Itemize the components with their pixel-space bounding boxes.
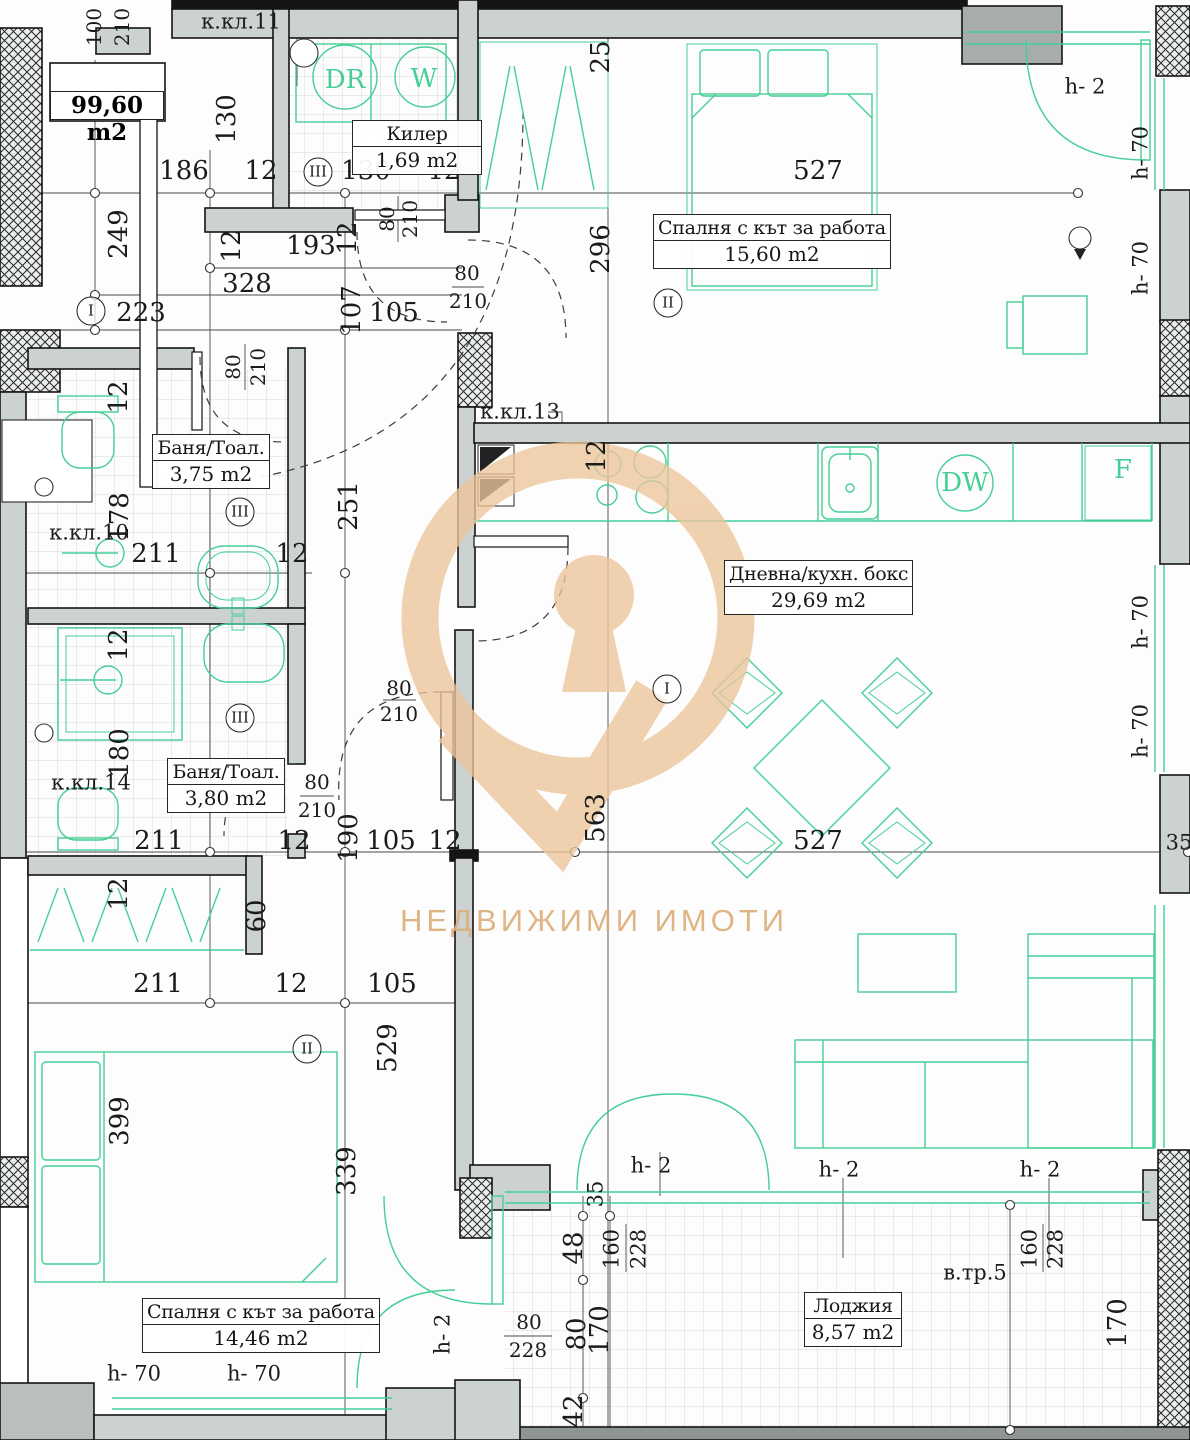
room-area: 3,75 m2: [153, 461, 269, 488]
dimension-label: 105: [367, 971, 417, 997]
shaft-label: к.кл.10: [49, 523, 129, 544]
dimension-label: 296: [588, 224, 614, 274]
dimension-label: 12: [219, 229, 245, 262]
dimension-label: 80: [223, 354, 243, 379]
dimension-label: 42: [561, 1394, 587, 1427]
dimension-label: 170: [587, 1305, 613, 1355]
dimension-label: 12: [274, 971, 307, 997]
dimension-label: 160: [1020, 1229, 1041, 1269]
dimension-label: 80: [516, 1312, 541, 1332]
dimension-label: 223: [116, 300, 166, 326]
dimension-label: 12: [106, 628, 132, 661]
dimension-label: 25: [588, 40, 614, 73]
shaft-label: к.кл.14: [51, 773, 131, 794]
dimension-label: 527: [793, 158, 843, 184]
room-label: Лоджия8,57 m2: [804, 1292, 902, 1347]
height-label: h- 70: [1131, 126, 1152, 180]
dimension-label: 12: [428, 828, 461, 854]
height-label: h- 70: [227, 1364, 281, 1385]
dimension-label: 251: [336, 481, 362, 531]
dimension-label: 100: [84, 8, 104, 46]
shaft-label: к.кл.13: [480, 402, 560, 423]
dimension-label: 529: [375, 1023, 401, 1073]
height-label: h- 70: [1131, 241, 1152, 295]
room-area: 8,57 m2: [805, 1319, 901, 1346]
dimension-label: 160: [602, 1229, 623, 1269]
dimension-label: 12: [275, 541, 308, 567]
level-marker: II: [654, 289, 683, 318]
height-label: h- 70: [107, 1364, 161, 1385]
dimension-label: 228: [629, 1229, 650, 1269]
dimension-label: 210: [248, 348, 268, 386]
dimension-label: 12: [106, 380, 132, 413]
dimension-label: 339: [334, 1146, 360, 1196]
dimension-label: 193: [286, 233, 336, 259]
dimension-label: 211: [131, 541, 181, 567]
washer-label: W: [411, 66, 438, 92]
dishwasher-label: DW: [941, 470, 989, 496]
dimension-label: 249: [106, 209, 132, 259]
room-name: Дневна/кухн. бокс: [725, 561, 912, 587]
room-label: Килер1,69 m2: [352, 120, 482, 175]
height-label: h- 2: [1020, 1160, 1061, 1181]
dimension-label: 210: [449, 291, 487, 311]
dimension-label: 105: [366, 828, 416, 854]
dimension-label: 527: [793, 828, 843, 854]
dimension-label: 80: [454, 263, 479, 283]
room-name: Спалня с кът за работа: [654, 215, 890, 241]
dimension-label: 12: [277, 828, 310, 854]
height-label: h- 70: [1131, 704, 1152, 758]
dimension-label: 80: [304, 772, 329, 792]
room-area: 1,69 m2: [353, 147, 481, 174]
dimension-label: 228: [1046, 1229, 1067, 1269]
dimension-label: 105: [369, 300, 419, 326]
level-marker: II: [293, 1035, 322, 1064]
dimension-label: 328: [222, 271, 272, 297]
dimension-label: 170: [1105, 1298, 1131, 1348]
dimension-label: 563: [583, 793, 609, 843]
dimension-label: 60: [244, 899, 270, 932]
dimension-label: 186: [159, 158, 209, 184]
dimension-label: 210: [380, 704, 418, 724]
dimension-label: 228: [509, 1340, 547, 1360]
height-label: h- 2: [819, 1160, 860, 1181]
dimension-label: 210: [298, 800, 336, 820]
room-label: Спалня с кът за работа15,60 m2: [653, 214, 891, 269]
fridge-label: F: [1114, 457, 1132, 483]
dimension-label: 211: [133, 971, 183, 997]
height-label: h- 2: [631, 1156, 672, 1177]
dimension-label: 12: [106, 877, 132, 910]
dimension-label: 211: [134, 828, 184, 854]
room-label: Баня/Тоал.3,80 m2: [167, 758, 285, 813]
floor-plan: НЕДВИЖИМИ ИМОТИ 99,60 m2 186121301252725…: [0, 0, 1190, 1440]
dimension-label: 12: [244, 158, 277, 184]
dimension-label: 80: [377, 206, 397, 231]
level-marker: III: [226, 704, 255, 733]
dimension-label: 35: [586, 1181, 607, 1208]
shaft-label: к.кл.11: [201, 12, 281, 33]
room-name: Баня/Тоал.: [153, 435, 269, 461]
height-label: h- 70: [1131, 595, 1152, 649]
dimension-label: 80: [386, 678, 411, 698]
room-area: 29,69 m2: [725, 587, 912, 614]
dimension-label: 210: [400, 200, 420, 238]
plan-labels: 1861213012527251002101302491219312328802…: [0, 0, 1190, 1440]
dimension-label: 35: [1166, 833, 1190, 854]
room-label: Дневна/кухн. бокс29,69 m2: [724, 560, 913, 615]
room-label: Баня/Тоал.3,75 m2: [152, 434, 270, 489]
level-marker: I: [653, 675, 682, 704]
dimension-label: 48: [561, 1231, 587, 1264]
level-marker: I: [77, 297, 106, 326]
dimension-label: 399: [107, 1096, 133, 1146]
height-label: h- 2: [1065, 77, 1106, 98]
room-area: 15,60 m2: [654, 241, 890, 268]
room-area: 14,46 m2: [143, 1325, 379, 1352]
dimension-label: 210: [112, 8, 132, 46]
room-name: Килер: [353, 121, 481, 147]
dryer-label: DR: [325, 67, 365, 93]
room-name: Спалня с кът за работа: [143, 1299, 379, 1325]
level-marker: III: [304, 158, 333, 187]
dimension-label: 190: [336, 813, 362, 863]
room-area: 3,80 m2: [168, 785, 284, 812]
room-label: Спалня с кът за работа14,46 m2: [142, 1298, 380, 1353]
dimension-label: 12: [584, 439, 610, 472]
level-marker: III: [226, 498, 255, 527]
dimension-label: 130: [214, 94, 240, 144]
dimension-label: 12: [335, 221, 361, 254]
height-label: h- 2: [433, 1314, 454, 1355]
room-name: Лоджия: [805, 1293, 901, 1319]
stair-label: в.тр.5: [943, 1263, 1007, 1284]
room-name: Баня/Тоал.: [168, 759, 284, 785]
dimension-label: 107: [339, 285, 365, 335]
